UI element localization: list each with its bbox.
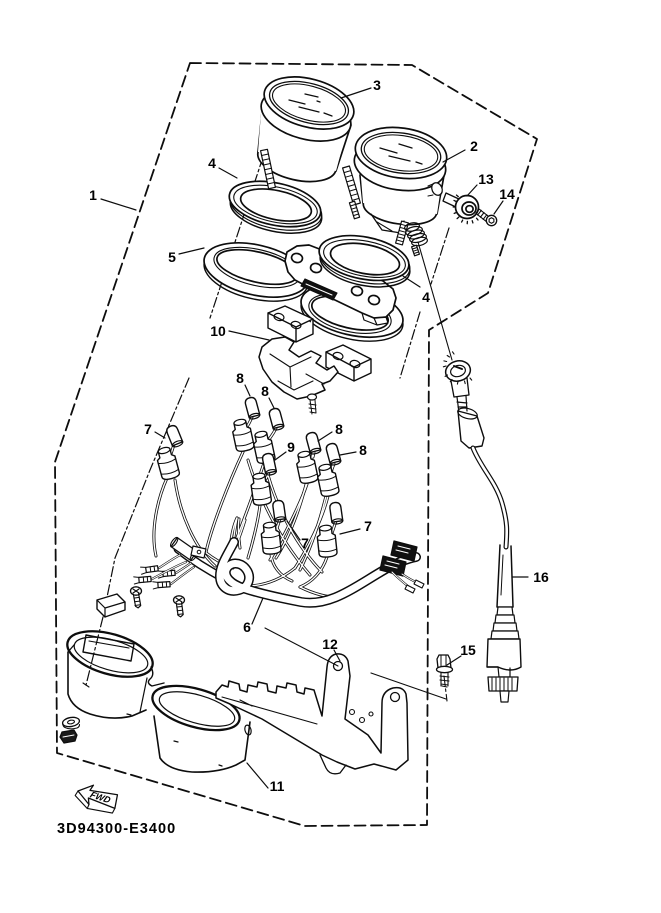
svg-text:1: 1	[89, 187, 97, 203]
svg-text:13: 13	[478, 171, 494, 187]
svg-text:8: 8	[335, 421, 343, 437]
svg-text:9: 9	[287, 439, 295, 455]
svg-text:3: 3	[373, 77, 381, 93]
svg-text:4: 4	[208, 155, 216, 171]
svg-text:10: 10	[210, 323, 226, 339]
svg-text:8: 8	[359, 442, 367, 458]
svg-text:4: 4	[422, 289, 430, 305]
svg-text:12: 12	[322, 636, 338, 652]
svg-text:8: 8	[236, 370, 244, 386]
svg-text:15: 15	[460, 642, 476, 658]
svg-text:11: 11	[270, 778, 285, 794]
svg-text:3D94300-E3400: 3D94300-E3400	[57, 821, 176, 837]
svg-text:16: 16	[533, 569, 549, 585]
svg-text:5: 5	[168, 249, 176, 265]
svg-text:7: 7	[364, 518, 372, 534]
svg-text:8: 8	[261, 383, 269, 399]
svg-text:7: 7	[144, 421, 152, 437]
svg-text:7: 7	[301, 535, 309, 551]
svg-text:14: 14	[499, 186, 515, 202]
svg-text:2: 2	[470, 138, 478, 154]
svg-text:6: 6	[243, 619, 251, 635]
